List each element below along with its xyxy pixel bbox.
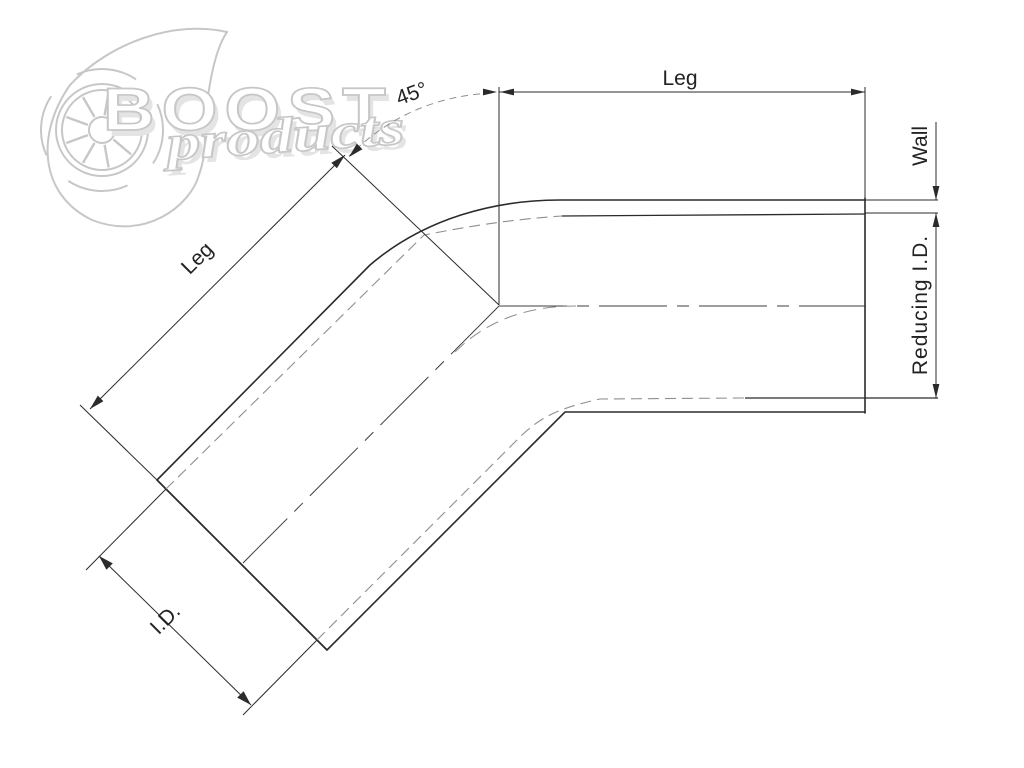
technical-drawing-canvas: BOOST BOOST products products [0,0,1024,768]
arrowhead [933,384,940,398]
arrowhead [483,89,497,96]
extension-line-id-outer [86,489,166,570]
pipe-outer-top-profile [157,200,865,480]
dimensions [80,87,939,715]
arrowhead [500,89,514,96]
pipe-large-end-face [157,480,327,650]
bore-top-hidden-line [166,216,562,489]
watermark-logo: BOOST BOOST products products [21,29,411,227]
bore-top-edge [562,214,865,216]
pipe-outer-bottom-profile [327,412,865,650]
label-reducing-id: Reducing I.D. [909,235,932,375]
dimension-line-id [99,556,251,705]
label-angle-45: 45° [393,78,431,110]
extension-line-bend-bisector [332,146,499,305]
elbow-drawing: BOOST BOOST products products [0,0,1024,768]
label-leg-horizontal: Leg [662,67,697,90]
angled-centerline [243,306,499,563]
bore-bottom-hidden-line [317,398,745,640]
extension-line-id-inner [243,640,317,715]
label-id: I.D. [146,600,185,639]
arrowhead [933,213,940,227]
bend-centerline-arc [455,306,576,352]
label-wall: Wall [909,126,932,166]
label-leg-angled: Leg [177,238,218,279]
arrowhead [851,89,865,96]
elbow-body [157,198,938,650]
arrowhead [933,186,940,200]
extension-line-large-end-face [80,405,157,480]
